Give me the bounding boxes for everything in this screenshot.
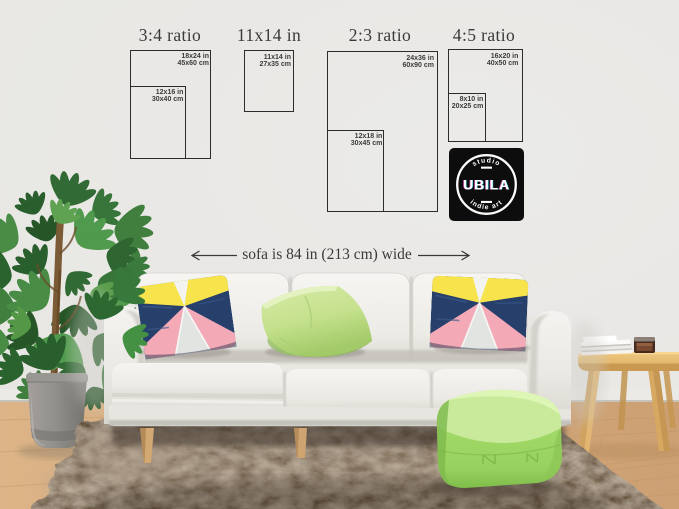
- svg-text:UBILA: UBILA: [463, 177, 510, 193]
